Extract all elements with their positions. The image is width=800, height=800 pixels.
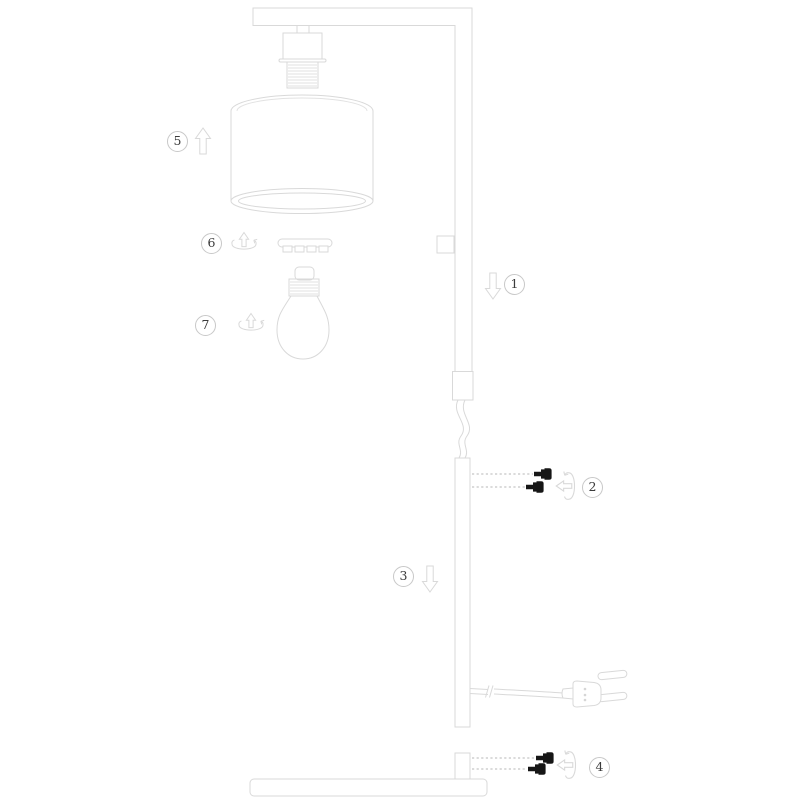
light-bulb — [277, 267, 329, 359]
arrow-down-icon — [486, 273, 501, 299]
assembly-line-art — [0, 0, 800, 800]
plug-prong — [598, 692, 628, 702]
lampshade — [231, 95, 373, 214]
power-plug — [562, 670, 627, 707]
screw-icon — [528, 763, 546, 775]
lamp-socket — [279, 26, 326, 89]
shade-retaining-ring — [278, 239, 332, 252]
inline-switch-block — [437, 236, 454, 253]
power-cable-loop — [456, 400, 469, 458]
screw-rotate-icon — [556, 471, 574, 499]
assembly-diagram-page: 1 2 3 4 5 6 7 — [0, 0, 800, 800]
arrow-down-icon — [423, 566, 438, 592]
screw-icon — [536, 752, 554, 764]
base-screws — [472, 752, 554, 775]
callout-step-2: 2 — [582, 477, 603, 498]
plug-prong — [598, 670, 628, 680]
callout-step-6: 6 — [201, 233, 222, 254]
upper-joint-screws — [472, 468, 552, 493]
callout-step-4: 4 — [589, 757, 610, 778]
screw-icon — [526, 481, 544, 493]
twist-rotate-icon — [239, 314, 264, 331]
callout-step-3: 3 — [393, 566, 414, 587]
callout-number: 2 — [589, 481, 597, 494]
callout-number: 5 — [174, 135, 182, 148]
callout-number: 7 — [202, 319, 210, 332]
arrow-up-icon — [196, 128, 211, 154]
callout-number: 6 — [208, 237, 216, 250]
middle-pole — [455, 458, 470, 727]
pole-connector-sleeve — [453, 372, 474, 401]
callout-step-1: 1 — [504, 274, 525, 295]
twist-rotate-icon — [232, 233, 257, 250]
base-pole-stub — [455, 753, 470, 779]
overhead-arm-and-upper-pole — [253, 8, 472, 372]
callout-number: 1 — [511, 278, 519, 291]
base-plate — [250, 779, 487, 796]
power-cord — [470, 686, 563, 699]
screw-icon — [534, 468, 552, 480]
callout-number: 4 — [596, 761, 604, 774]
callout-step-7: 7 — [195, 315, 216, 336]
screw-rotate-icon — [557, 750, 575, 778]
callout-step-5: 5 — [167, 131, 188, 152]
callout-number: 3 — [400, 570, 408, 583]
